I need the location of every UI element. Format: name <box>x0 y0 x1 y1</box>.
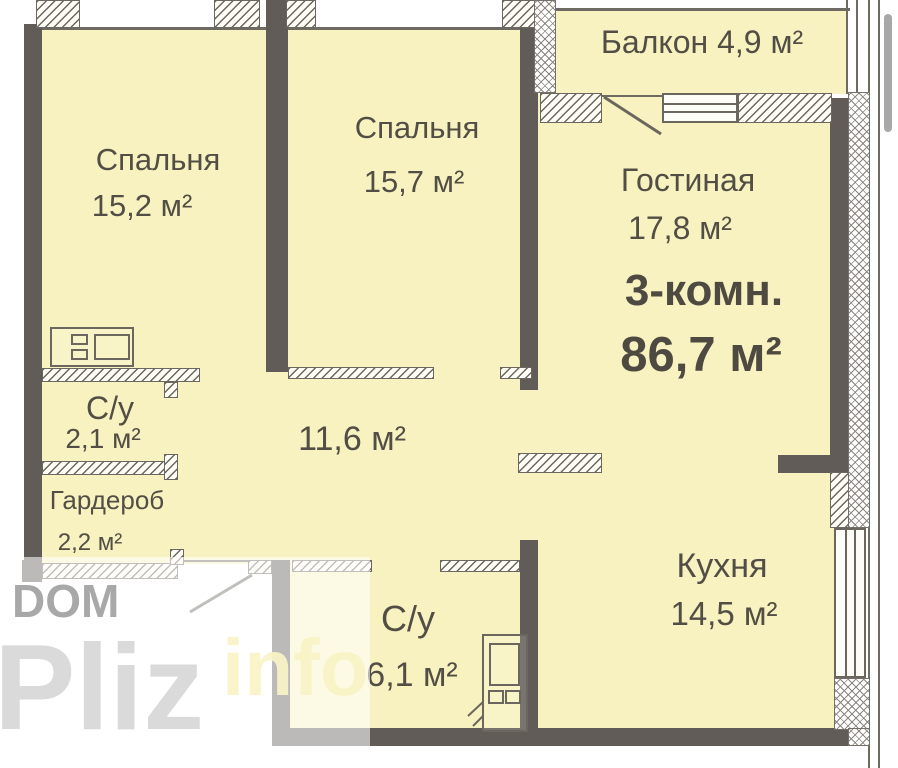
window-glass-line <box>664 111 736 113</box>
window-glass-line <box>664 103 736 105</box>
label-total-area: 86,7 м² <box>620 330 782 381</box>
washer-drum <box>489 643 520 686</box>
wall-bedroom-divider <box>266 0 288 372</box>
label-bedroom1-name: Спальня <box>96 144 221 177</box>
kitchen-exterior-hatch <box>830 472 850 528</box>
scrollbar-thumb[interactable] <box>884 14 892 132</box>
wall-living-right <box>830 98 850 460</box>
label-bedroom1-area: 15,2 м² <box>92 190 193 223</box>
label-living-name: Гостиная <box>621 164 755 198</box>
hall-living-hatch-window <box>518 453 602 473</box>
wall-left-exterior <box>24 24 42 582</box>
appliance-door <box>94 334 130 360</box>
floor-plan: Спальня 15,2 м² Спальня 15,7 м² Балкон 4… <box>0 0 898 768</box>
balcony-right-line-outer <box>846 0 848 94</box>
label-bedroom2-area: 15,7 м² <box>364 166 465 199</box>
room-bedroom2 <box>288 28 520 372</box>
washer-tray <box>488 690 504 704</box>
crosshatch-right-lower <box>834 678 870 730</box>
exterior-hatch-top-2 <box>214 0 260 28</box>
label-bath2-name: С/у <box>381 600 435 638</box>
partition-bath1-stub <box>164 382 178 398</box>
partition-bedroom2-bottom-left <box>288 367 434 379</box>
balcony-top-line <box>556 8 850 11</box>
window-glass-line <box>854 530 856 676</box>
partition-bath2-top-right <box>440 560 520 572</box>
balcony-window <box>662 93 738 123</box>
balcony-right-line-inner <box>856 0 858 94</box>
label-bath1-name: С/у <box>86 392 134 426</box>
label-hall-area: 11,6 м² <box>298 422 406 458</box>
kitchen-window <box>834 528 866 678</box>
label-bedroom2-name: Спальня <box>355 112 480 145</box>
partition-bedroom2-bottom-right <box>500 367 532 379</box>
facade-line-b <box>878 0 880 768</box>
appliance-knob <box>71 334 88 345</box>
window-glass-line <box>845 530 847 676</box>
exterior-hatch-top-4 <box>502 0 536 28</box>
crosshatch-balcony-left <box>534 0 556 93</box>
partition-wardrobe-top <box>42 461 174 475</box>
washing-machine-icon <box>482 634 528 732</box>
appliance-knob <box>71 349 88 360</box>
wall-kitchen-top <box>778 455 850 473</box>
partition-bath1-top <box>42 368 200 382</box>
exterior-hatch-top-3 <box>286 0 316 28</box>
washer-tray <box>505 690 521 704</box>
watermark-info: info <box>222 628 369 708</box>
label-apartment-type: 3-комн. <box>625 268 783 314</box>
watermark-dom: DOM <box>12 578 119 624</box>
label-wardrobe-area: 2,2 м² <box>58 530 123 555</box>
label-kitchen-name: Кухня <box>677 549 768 585</box>
balcony-wall-hatch-right <box>738 93 832 123</box>
crosshatch-bottom-corner <box>848 728 870 746</box>
exterior-hatch-top-1 <box>36 0 80 28</box>
label-bath1-area: 2,1 м² <box>65 424 140 453</box>
label-living-area: 17,8 м² <box>628 212 732 246</box>
label-wardrobe-name: Гардероб <box>50 487 164 514</box>
label-kitchen-area: 14,5 м² <box>670 597 777 632</box>
balcony-door-hinge-block <box>540 93 602 123</box>
watermark-pliz: Pliz <box>0 626 204 748</box>
label-balcony: Балкон 4,9 м² <box>601 26 803 60</box>
partition-wardrobe-stub <box>164 454 178 480</box>
balcony-door-opening-line <box>602 95 664 97</box>
appliance-icon <box>50 327 134 367</box>
crosshatch-right-upper <box>848 92 870 528</box>
room-kitchen <box>538 460 834 728</box>
label-bath2-area: 6,1 м² <box>366 658 457 694</box>
